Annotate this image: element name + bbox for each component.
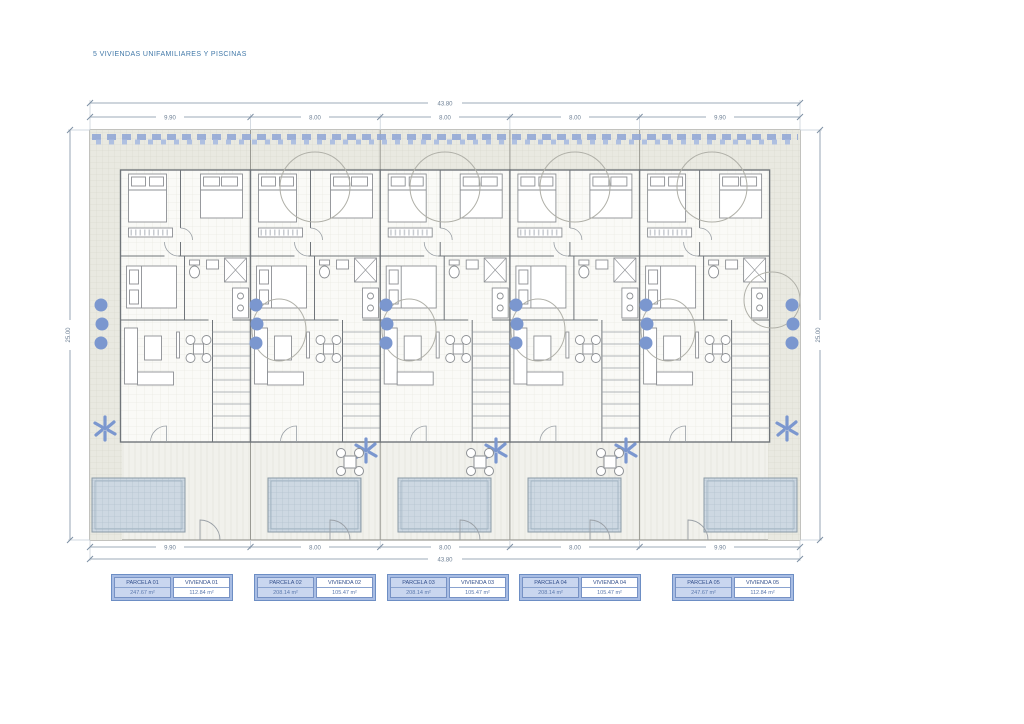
- dim-label-bottom-total: 43.80: [437, 558, 453, 564]
- dim-label-top-2: 8.00: [309, 116, 321, 122]
- dim-label-bottom-4: 8.00: [569, 546, 581, 552]
- pool-4: [528, 478, 621, 532]
- dwelling-label: VIVIENDA 02: [317, 578, 372, 588]
- dim-label-top-3: 8.00: [439, 116, 451, 122]
- parcel-label: PARCELA 01: [115, 578, 170, 588]
- dim-label-top-1: 9.90: [164, 116, 176, 122]
- parcel-cell-03: PARCELA 03 208.14 m²: [390, 577, 447, 598]
- legend-box-01: PARCELA 01 247.67 m² VIVIENDA 01 112.84 …: [111, 574, 233, 601]
- dim-label-top-5: 9.90: [714, 116, 726, 122]
- dim-label-bottom-3: 8.00: [439, 546, 451, 552]
- dwelling-area: 105.47 m²: [317, 588, 372, 597]
- dwelling-area: 112.84 m²: [174, 588, 229, 597]
- pool-2: [268, 478, 361, 532]
- parcel-area: 247.67 m²: [115, 588, 170, 597]
- dim-bottom-total: 43.80: [87, 554, 803, 564]
- dim-label-left-side: 25.00: [66, 327, 72, 343]
- dim-label-top-total: 43.80: [437, 102, 453, 108]
- house-unit-2: [251, 170, 381, 442]
- dwelling-label: VIVIENDA 03: [450, 578, 505, 588]
- parcel-area: 208.14 m²: [523, 588, 578, 597]
- dwelling-label: VIVIENDA 05: [735, 578, 790, 588]
- parcel-cell-04: PARCELA 04 208.14 m²: [522, 577, 579, 598]
- house-unit-5: [640, 170, 770, 442]
- dim-label-bottom-2: 8.00: [309, 546, 321, 552]
- pool-3: [398, 478, 491, 532]
- dwelling-cell-05: VIVIENDA 05 112.84 m²: [734, 577, 791, 598]
- dim-right-side: 25.00: [815, 127, 825, 543]
- parcel-label: PARCELA 03: [391, 578, 446, 588]
- parcel-label: PARCELA 04: [523, 578, 578, 588]
- pool-5: [704, 478, 797, 532]
- parcel-area: 208.14 m²: [391, 588, 446, 597]
- legend-box-03: PARCELA 03 208.14 m² VIVIENDA 03 105.47 …: [387, 574, 509, 601]
- dim-label-bottom-5: 9.90: [714, 546, 726, 552]
- dwelling-area: 105.47 m²: [582, 588, 637, 597]
- dim-bottom-segments: 9.90 8.00 8.00 8.00 9.90: [87, 542, 803, 552]
- parcel-area: 208.14 m²: [258, 588, 313, 597]
- parcel-area: 247.67 m²: [676, 588, 731, 597]
- house-unit-3: [380, 170, 510, 442]
- dwelling-cell-04: VIVIENDA 04 105.47 m²: [581, 577, 638, 598]
- dwelling-cell-03: VIVIENDA 03 105.47 m²: [449, 577, 506, 598]
- site-area: [90, 130, 800, 540]
- parcel-label: PARCELA 05: [676, 578, 731, 588]
- dwelling-area: 112.84 m²: [735, 588, 790, 597]
- dim-left-side: 25.00: [65, 127, 75, 543]
- dwelling-cell-02: VIVIENDA 02 105.47 m²: [316, 577, 373, 598]
- house-unit-1: [121, 170, 251, 442]
- pool-1: [92, 478, 185, 532]
- parcel-cell-05: PARCELA 05 247.67 m²: [675, 577, 732, 598]
- dwelling-label: VIVIENDA 01: [174, 578, 229, 588]
- dim-label-bottom-1: 9.90: [164, 546, 176, 552]
- dim-label-top-4: 8.00: [569, 116, 581, 122]
- dwelling-cell-01: VIVIENDA 01 112.84 m²: [173, 577, 230, 598]
- dim-label-right-side: 25.00: [816, 327, 822, 343]
- dim-top-segments: 9.90 8.00 8.00 8.00 9.90: [87, 112, 803, 122]
- house-unit-4: [510, 170, 640, 442]
- parcel-cell-02: PARCELA 02 208.14 m²: [257, 577, 314, 598]
- parcel-label: PARCELA 02: [258, 578, 313, 588]
- dwelling-area: 105.47 m²: [450, 588, 505, 597]
- legend-box-02: PARCELA 02 208.14 m² VIVIENDA 02 105.47 …: [254, 574, 376, 601]
- legend-box-05: PARCELA 05 247.67 m² VIVIENDA 05 112.84 …: [672, 574, 794, 601]
- site-plan-drawing: 43.80 9.90 8.00 8.00 8.00 9.90 9.90: [0, 0, 1024, 724]
- legend-box-04: PARCELA 04 208.14 m² VIVIENDA 04 105.47 …: [519, 574, 641, 601]
- dim-top-total: 43.80: [87, 98, 803, 108]
- dwelling-label: VIVIENDA 04: [582, 578, 637, 588]
- parcel-cell-01: PARCELA 01 247.67 m²: [114, 577, 171, 598]
